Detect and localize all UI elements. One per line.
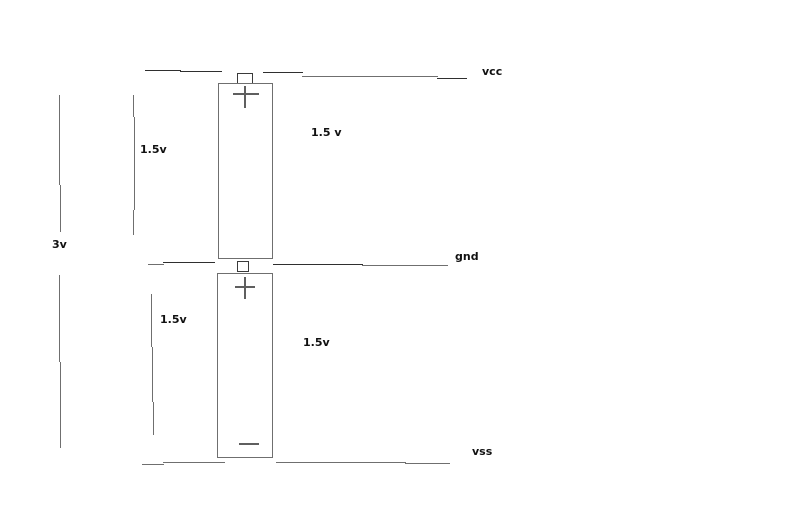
minus-icon-hbar [239,443,259,445]
bottom-battery-right-voltage-label: 1.5v [303,337,330,348]
vcc-wire-left-segment-2 [180,71,222,72]
bottom-battery-body [217,273,273,458]
gnd-terminal-nub [237,261,249,272]
total-voltage-label: 3v [52,239,67,250]
bottom-measure-line-segment-3 [153,402,154,435]
plus-icon-hbar [233,93,259,95]
plus-icon-vbar [244,86,246,108]
top-battery-right-voltage-label: 1.5 v [311,127,342,138]
total-measure-line-upper-1 [59,95,60,185]
gnd-wire-left-segment-2 [163,262,215,263]
top-measure-line-segment-3 [133,210,134,235]
plus-icon-vbar [244,277,246,299]
vcc-wire-left-segment-1 [145,70,181,71]
top-measure-line-segment-2 [134,117,135,210]
gnd-label: gnd [455,251,479,262]
total-measure-line-upper-2 [60,185,61,232]
total-measure-line-lower-2 [60,362,61,448]
vcc-wire-right-segment-2 [302,76,438,77]
vss-wire-right-segment-1 [276,462,406,463]
vss-label: vss [472,446,492,457]
bottom-battery-left-voltage-label: 1.5v [160,314,187,325]
paint-diagram-canvas: vcc 1.5v 1.5 v gnd [0,0,800,527]
vss-wire-left-segment-1 [142,464,164,465]
gnd-wire-right-segment-2 [362,265,448,266]
bottom-measure-line-segment-1 [151,294,152,347]
total-measure-line-lower-1 [59,275,60,362]
vcc-label: vcc [482,66,502,77]
top-battery-body [218,83,273,259]
bottom-measure-line-segment-2 [152,347,153,402]
top-battery-left-voltage-label: 1.5v [140,144,167,155]
vss-wire-left-segment-2 [163,462,225,463]
vcc-wire-right-segment-1 [263,72,303,73]
gnd-wire-left-segment-1 [148,264,164,265]
vcc-wire-right-segment-3 [437,78,467,79]
gnd-wire-right-segment-1 [273,264,363,265]
top-measure-line-segment-1 [133,95,134,117]
vss-wire-right-segment-2 [405,463,450,464]
